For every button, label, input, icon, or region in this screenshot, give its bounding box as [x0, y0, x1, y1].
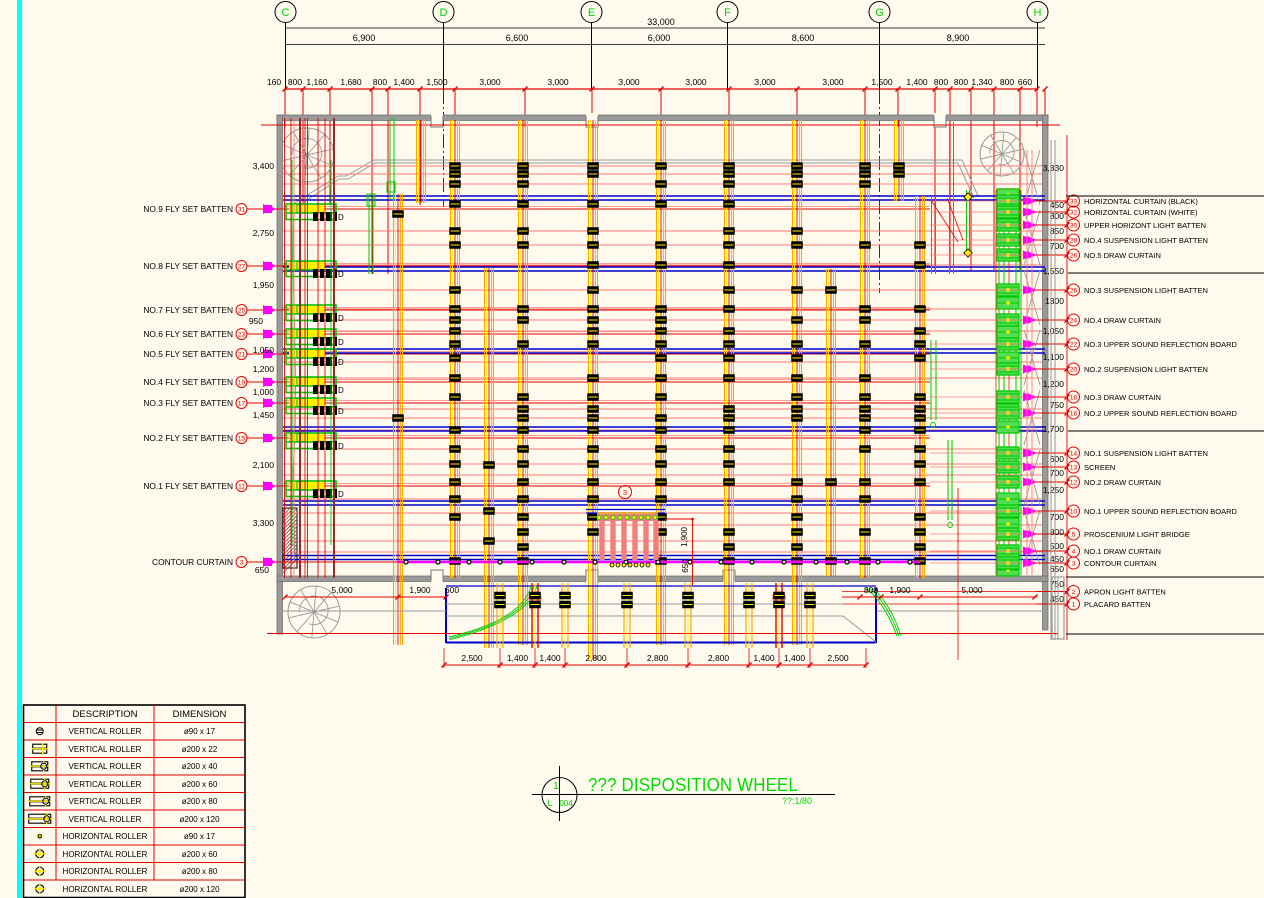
svg-text:ø200 x 80: ø200 x 80 [182, 867, 218, 876]
svg-text:650: 650 [255, 565, 269, 575]
svg-text:004: 004 [559, 799, 573, 808]
svg-text:1,400: 1,400 [393, 77, 415, 87]
svg-text:CONTOUR CURTAIN: CONTOUR CURTAIN [1084, 559, 1157, 568]
svg-text:500: 500 [1050, 541, 1064, 551]
svg-text:NO.1 UPPER SOUND REFLECTION BO: NO.1 UPPER SOUND REFLECTION BOARD [1084, 507, 1238, 516]
svg-text:750: 750 [1050, 400, 1064, 410]
svg-text:800: 800 [1050, 527, 1064, 537]
svg-text:3,000: 3,000 [685, 77, 707, 87]
svg-text:1,500: 1,500 [426, 77, 448, 87]
svg-text:HORIZONTAL ROLLER: HORIZONTAL ROLLER [63, 885, 148, 894]
svg-text:??:1/80: ??:1/80 [782, 796, 812, 806]
svg-text:1,050: 1,050 [1043, 326, 1065, 336]
svg-text:10: 10 [1070, 509, 1078, 516]
svg-text:18: 18 [1070, 395, 1078, 402]
svg-text:APRON LIGHT BATTEN: APRON LIGHT BATTEN [1084, 588, 1166, 597]
svg-text:H: H [1034, 7, 1042, 19]
svg-text:1,400: 1,400 [539, 653, 561, 663]
svg-text:HORIZONTAL ROLLER: HORIZONTAL ROLLER [63, 867, 148, 876]
svg-text:PLACARD BATTEN: PLACARD BATTEN [1084, 600, 1151, 609]
svg-text:D: D [338, 213, 344, 222]
svg-text:2,800: 2,800 [647, 653, 669, 663]
svg-text:NO.2 DRAW CURTAIN: NO.2 DRAW CURTAIN [1084, 478, 1161, 487]
svg-text:1,000: 1,000 [253, 387, 275, 397]
svg-text:DIMENSION: DIMENSION [173, 709, 227, 720]
svg-text:E: E [588, 7, 595, 19]
svg-text:1,900: 1,900 [409, 585, 431, 595]
svg-text:8,600: 8,600 [792, 33, 815, 43]
svg-text:NO.8 FLY SET BATTEN: NO.8 FLY SET BATTEN [143, 261, 233, 271]
svg-text:20: 20 [1070, 367, 1078, 374]
svg-text:NO.2 FLY SET BATTEN: NO.2 FLY SET BATTEN [143, 433, 233, 443]
svg-text:NO.2 SUSPENSION LIGHT BATTEN: NO.2 SUSPENSION LIGHT BATTEN [1084, 365, 1208, 374]
svg-text:G: G [875, 7, 884, 19]
svg-text:3,330: 3,330 [1043, 163, 1065, 173]
svg-text:3: 3 [240, 560, 244, 567]
svg-text:13: 13 [1070, 465, 1078, 472]
svg-text:3,000: 3,000 [822, 77, 844, 87]
svg-text:D: D [338, 490, 344, 499]
svg-text:650: 650 [1050, 564, 1064, 574]
svg-text:1,450: 1,450 [253, 410, 275, 420]
svg-text:1,950: 1,950 [253, 280, 275, 290]
svg-text:ø200 x 60: ø200 x 60 [182, 850, 218, 859]
svg-text:HORIZONTAL CURTAIN (WHITE): HORIZONTAL CURTAIN (WHITE) [1084, 208, 1198, 217]
svg-text:800: 800 [373, 77, 387, 87]
svg-text:800: 800 [288, 77, 302, 87]
svg-text:NO.4 DRAW CURTAIN: NO.4 DRAW CURTAIN [1084, 316, 1161, 325]
svg-text:3,300: 3,300 [253, 518, 275, 528]
svg-text:26: 26 [1070, 253, 1078, 260]
svg-text:5: 5 [1072, 532, 1076, 539]
svg-text:850: 850 [1050, 226, 1064, 236]
svg-text:1,160: 1,160 [306, 77, 328, 87]
svg-text:1: 1 [1072, 602, 1076, 609]
svg-text:NO.3 UPPER SOUND REFLECTION BO: NO.3 UPPER SOUND REFLECTION BOARD [1084, 340, 1238, 349]
svg-text:2,100: 2,100 [253, 460, 275, 470]
svg-text:NO.1 FLY SET BATTEN: NO.1 FLY SET BATTEN [143, 481, 233, 491]
svg-text:4: 4 [1072, 549, 1076, 556]
svg-text:2: 2 [1072, 589, 1076, 596]
svg-text:ø200 x 40: ø200 x 40 [182, 762, 218, 771]
svg-text:5,000: 5,000 [331, 585, 353, 595]
svg-text:1,500: 1,500 [871, 77, 893, 87]
svg-text:ø200 x 22: ø200 x 22 [182, 745, 218, 754]
svg-text:CONTOUR CURTAIN: CONTOUR CURTAIN [152, 557, 233, 567]
svg-text:26: 26 [1070, 288, 1078, 295]
svg-text:NO.2 UPPER SOUND REFLECTION BO: NO.2 UPPER SOUND REFLECTION BOARD [1084, 409, 1238, 418]
svg-text:2,500: 2,500 [827, 653, 849, 663]
svg-text:2,800: 2,800 [708, 653, 730, 663]
svg-text:ø90 x 17: ø90 x 17 [184, 727, 216, 736]
svg-text:1,250: 1,250 [1043, 485, 1065, 495]
svg-text:ø200 x 60: ø200 x 60 [182, 780, 218, 789]
svg-text:3,400: 3,400 [253, 161, 275, 171]
svg-text:12: 12 [1070, 480, 1078, 487]
svg-text:450: 450 [1050, 554, 1064, 564]
svg-text:3: 3 [1072, 561, 1076, 568]
svg-text:ø200 x 120: ø200 x 120 [179, 885, 220, 894]
svg-text:1,550: 1,550 [1043, 266, 1065, 276]
svg-text:D: D [338, 358, 344, 367]
svg-text:23: 23 [238, 332, 246, 339]
svg-text:800: 800 [1050, 211, 1064, 221]
svg-text:NO.3 SUSPENSION LIGHT BATTEN: NO.3 SUSPENSION LIGHT BATTEN [1084, 286, 1208, 295]
svg-text:NO.1 SUSPENSION LIGHT BATTEN: NO.1 SUSPENSION LIGHT BATTEN [1084, 449, 1208, 458]
svg-text:2,800: 2,800 [585, 653, 607, 663]
svg-text:NO.6 FLY SET BATTEN: NO.6 FLY SET BATTEN [143, 329, 233, 339]
svg-text:14: 14 [1070, 451, 1078, 458]
svg-text:11: 11 [238, 484, 245, 491]
svg-text:1,100: 1,100 [1043, 352, 1065, 362]
svg-text:22: 22 [1070, 342, 1078, 349]
svg-text:1,200: 1,200 [1043, 379, 1065, 389]
svg-text:2,750: 2,750 [253, 228, 275, 238]
svg-text:17: 17 [238, 401, 246, 408]
svg-text:F: F [724, 7, 731, 19]
svg-text:1,340: 1,340 [971, 77, 993, 87]
svg-text:600: 600 [445, 585, 459, 595]
svg-text:3,000: 3,000 [618, 77, 640, 87]
svg-text:VERTICAL ROLLER: VERTICAL ROLLER [69, 745, 142, 754]
svg-text:1,400: 1,400 [906, 77, 928, 87]
svg-text:800: 800 [934, 77, 948, 87]
svg-text:D: D [440, 7, 448, 19]
svg-text:450: 450 [1050, 200, 1064, 210]
svg-text:3: 3 [623, 488, 627, 497]
svg-text:31: 31 [238, 207, 246, 214]
svg-text:VERTICAL ROLLER: VERTICAL ROLLER [69, 762, 142, 771]
svg-text:8,900: 8,900 [947, 33, 970, 43]
svg-text:D: D [338, 338, 344, 347]
svg-text:VERTICAL ROLLER: VERTICAL ROLLER [69, 780, 142, 789]
svg-text:D: D [338, 407, 344, 416]
svg-text:ø200 x 120: ø200 x 120 [179, 815, 220, 824]
svg-text:1,900: 1,900 [889, 585, 911, 595]
svg-text:HORIZONTAL CURTAIN (BLACK): HORIZONTAL CURTAIN (BLACK) [1084, 197, 1198, 206]
svg-text:33: 33 [1070, 199, 1078, 206]
svg-text:D: D [338, 442, 344, 451]
svg-text:19: 19 [238, 380, 246, 387]
svg-text:5,000: 5,000 [961, 585, 983, 595]
svg-text:D: D [338, 314, 344, 323]
svg-text:NO.9 FLY SET BATTEN: NO.9 FLY SET BATTEN [143, 204, 233, 214]
svg-text:SCREEN: SCREEN [1084, 463, 1115, 472]
svg-text:32: 32 [1070, 210, 1078, 217]
svg-text:C: C [282, 7, 290, 19]
svg-text:25: 25 [238, 308, 246, 315]
svg-text:NO.3 FLY SET BATTEN: NO.3 FLY SET BATTEN [143, 398, 233, 408]
svg-text:D: D [338, 270, 344, 279]
svg-text:2,500: 2,500 [461, 653, 483, 663]
svg-text:27: 27 [238, 264, 246, 271]
svg-text:600: 600 [1050, 454, 1064, 464]
svg-text:ø90 x 17: ø90 x 17 [184, 832, 216, 841]
svg-text:24: 24 [1070, 318, 1078, 325]
svg-text:33,000: 33,000 [647, 17, 675, 27]
svg-text:700: 700 [1050, 512, 1064, 522]
svg-text:800: 800 [954, 77, 968, 87]
svg-text:PROSCENIUM LIGHT BRIDGE: PROSCENIUM LIGHT BRIDGE [1084, 530, 1190, 539]
svg-text:800: 800 [1000, 77, 1014, 87]
svg-text:UPPER HORIZONT LIGHT BATTEN: UPPER HORIZONT LIGHT BATTEN [1084, 221, 1206, 230]
svg-text:6,900: 6,900 [353, 33, 376, 43]
svg-text:21: 21 [238, 352, 246, 359]
svg-text:HORIZONTAL ROLLER: HORIZONTAL ROLLER [63, 850, 148, 859]
svg-text:D: D [338, 386, 344, 395]
svg-text:3,000: 3,000 [754, 77, 776, 87]
svg-text:800: 800 [864, 585, 878, 595]
svg-text:950: 950 [249, 316, 263, 326]
svg-text:1,400: 1,400 [507, 653, 529, 663]
svg-text:L: L [547, 798, 552, 808]
svg-text:HORIZONTAL ROLLER: HORIZONTAL ROLLER [63, 832, 148, 841]
svg-text:6,600: 6,600 [506, 33, 529, 43]
svg-text:3,000: 3,000 [479, 77, 501, 87]
svg-text:NO.5 DRAW CURTAIN: NO.5 DRAW CURTAIN [1084, 251, 1161, 260]
svg-text:160: 160 [267, 77, 281, 87]
svg-text:VERTICAL ROLLER: VERTICAL ROLLER [69, 797, 142, 806]
svg-text:30: 30 [1070, 223, 1078, 230]
svg-text:1,900: 1,900 [680, 526, 689, 547]
svg-text:660: 660 [1018, 77, 1032, 87]
svg-text:DESCRIPTION: DESCRIPTION [73, 709, 138, 720]
svg-text:1: 1 [553, 781, 559, 792]
svg-text:650: 650 [681, 559, 690, 573]
svg-text:6,000: 6,000 [648, 33, 671, 43]
svg-text:VERTICAL ROLLER: VERTICAL ROLLER [69, 727, 142, 736]
svg-text:700: 700 [1050, 468, 1064, 478]
svg-text:NO.3 DRAW CURTAIN: NO.3 DRAW CURTAIN [1084, 393, 1161, 402]
svg-text:700: 700 [1050, 241, 1064, 251]
svg-text:NO.1 DRAW CURTAIN: NO.1 DRAW CURTAIN [1084, 547, 1161, 556]
svg-text:NO.7 FLY SET BATTEN: NO.7 FLY SET BATTEN [143, 305, 233, 315]
svg-text:15: 15 [238, 436, 246, 443]
svg-text:ø200 x 80: ø200 x 80 [182, 797, 218, 806]
svg-text:NO.4 SUSPENSION LIGHT BATTEN: NO.4 SUSPENSION LIGHT BATTEN [1084, 236, 1208, 245]
svg-text:??? DISPOSITION WHEEL: ??? DISPOSITION WHEEL [588, 774, 798, 795]
svg-text:NO.5 FLY SET BATTEN: NO.5 FLY SET BATTEN [143, 349, 233, 359]
svg-text:VERTICAL ROLLER: VERTICAL ROLLER [69, 815, 142, 824]
svg-text:28: 28 [1070, 238, 1078, 245]
svg-text:1,200: 1,200 [253, 364, 275, 374]
svg-text:16: 16 [1070, 411, 1078, 418]
svg-text:3,000: 3,000 [547, 77, 569, 87]
svg-text:1,700: 1,700 [1043, 424, 1065, 434]
svg-text:1,680: 1,680 [340, 77, 362, 87]
svg-text:1,400: 1,400 [753, 653, 775, 663]
svg-text:1,050: 1,050 [253, 345, 275, 355]
svg-text:1,400: 1,400 [784, 653, 806, 663]
svg-text:NO.4 FLY SET BATTEN: NO.4 FLY SET BATTEN [143, 377, 233, 387]
